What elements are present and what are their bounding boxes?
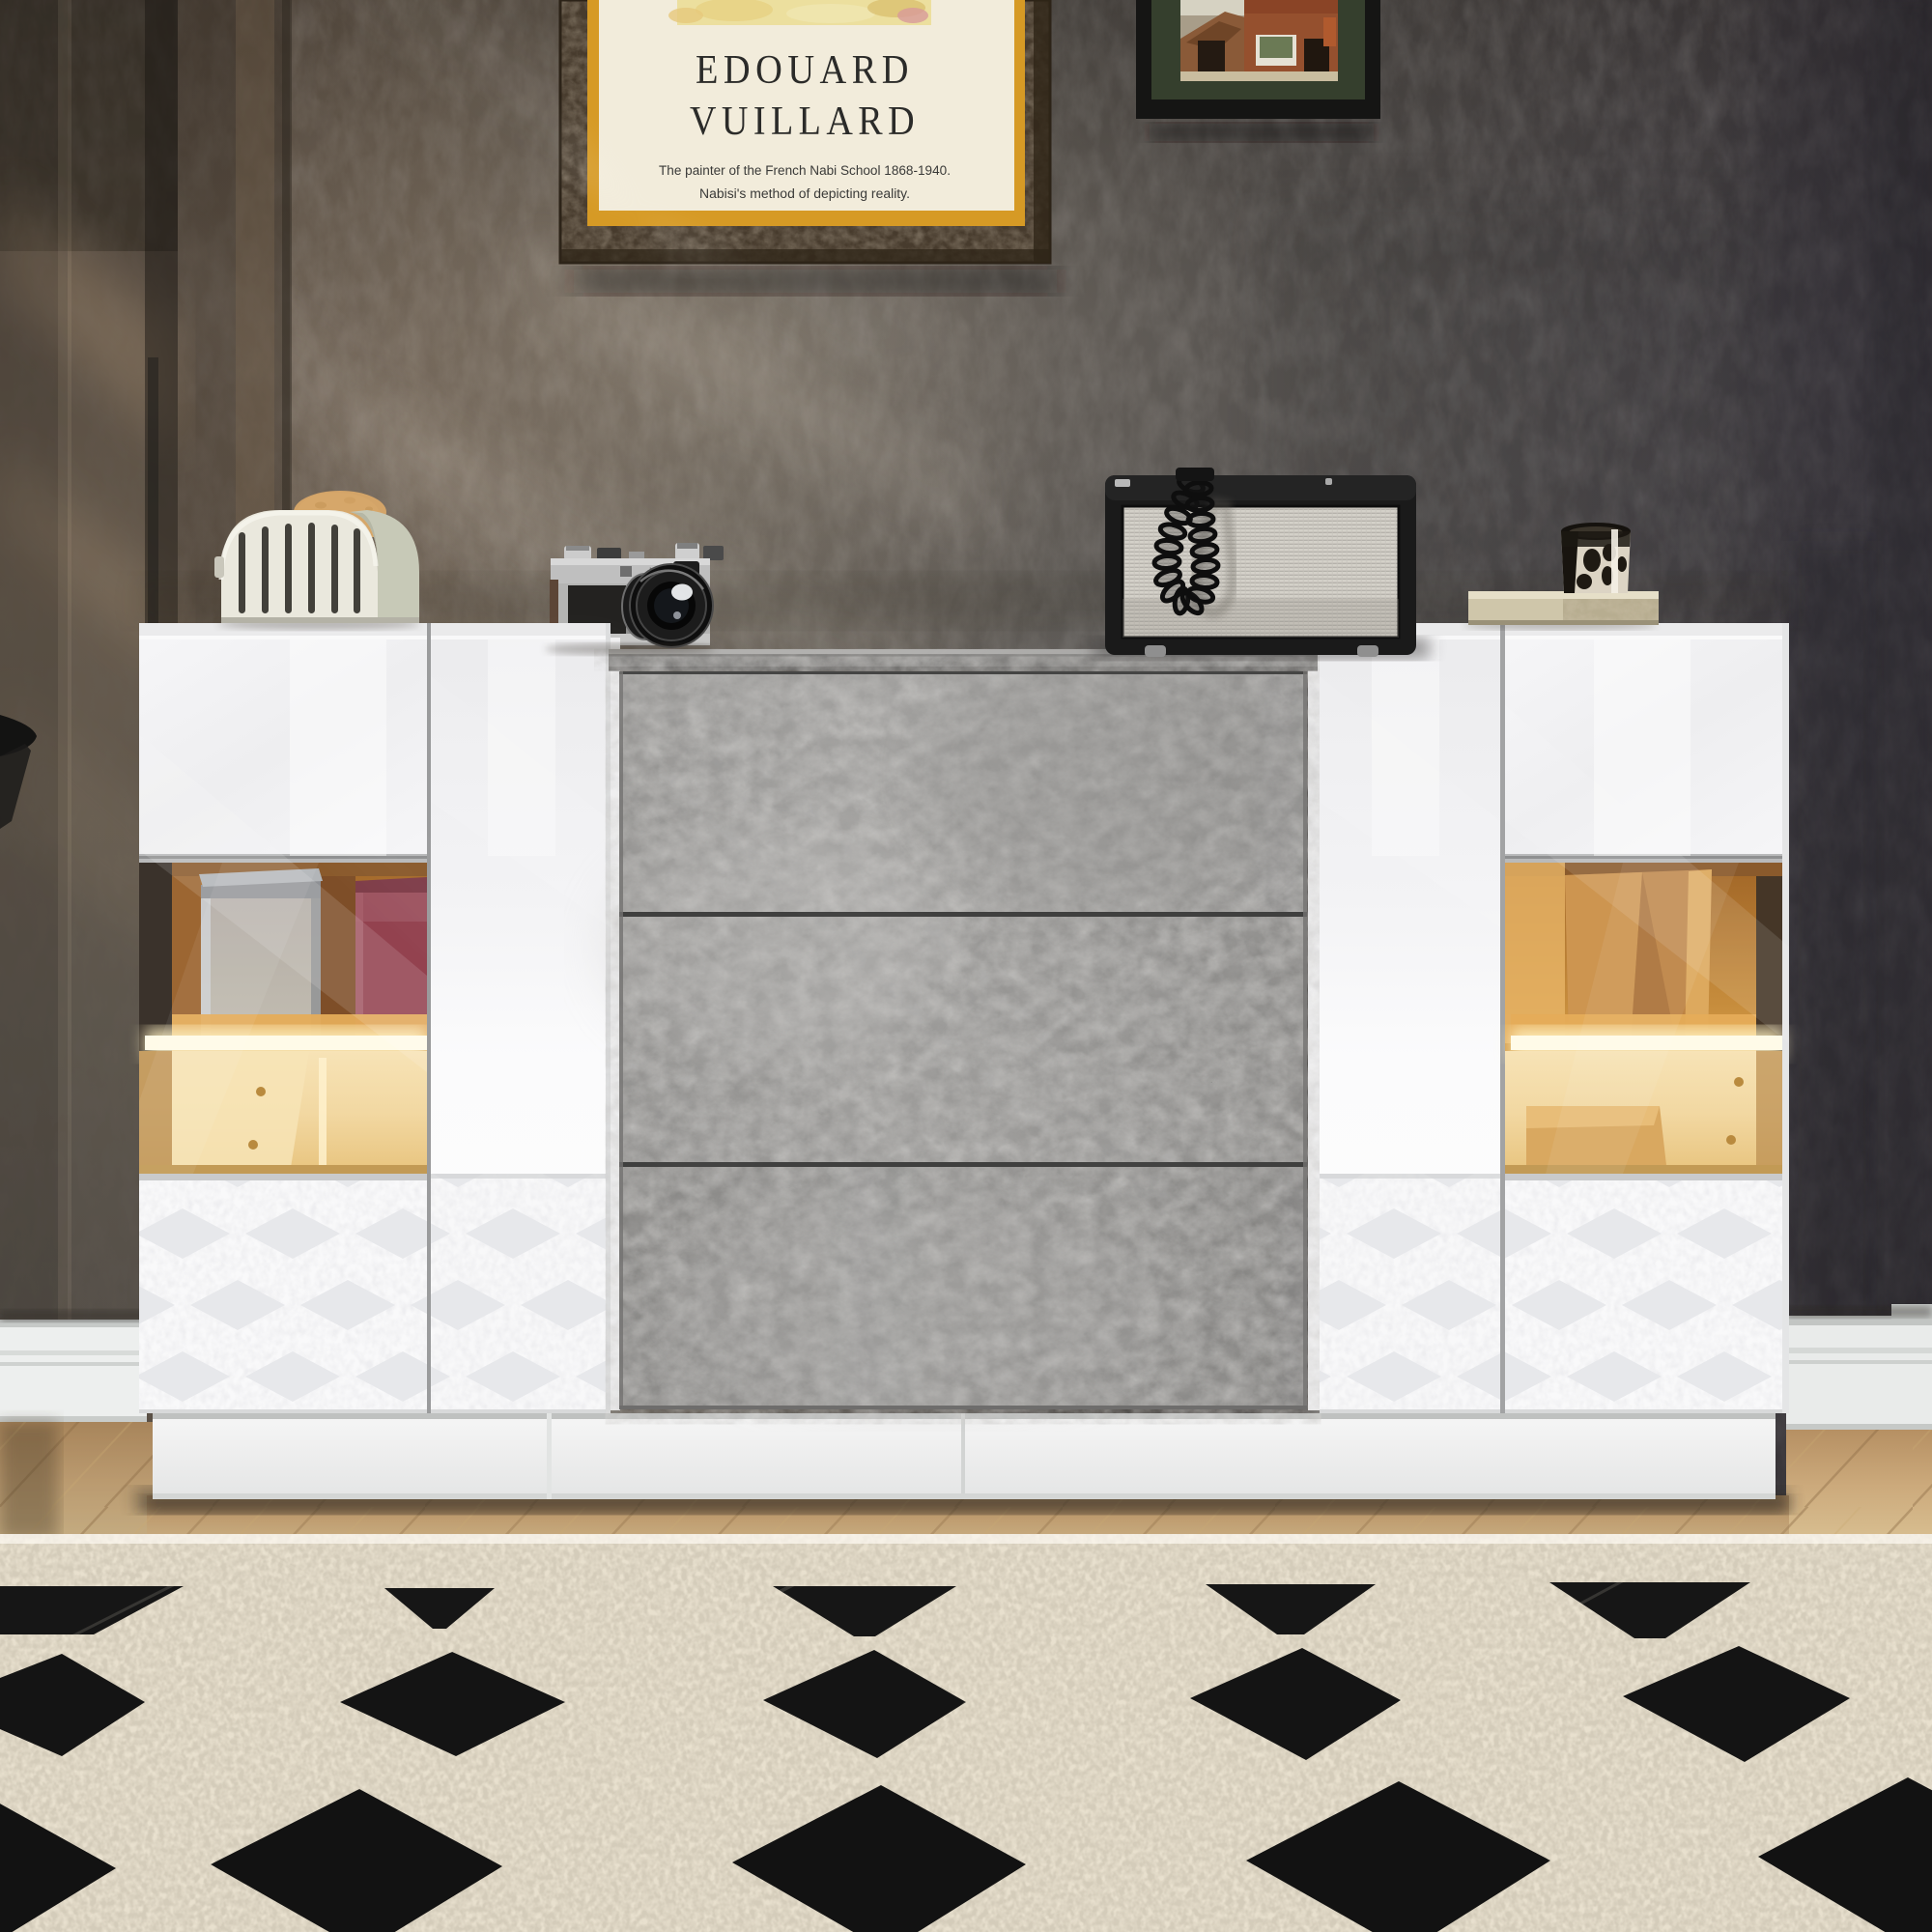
svg-text:Nabisi's method of depicting r: Nabisi's method of depicting reality.: [699, 186, 910, 201]
svg-text:EDOUARD: EDOUARD: [696, 48, 914, 93]
svg-text:The painter of the French Nabi: The painter of the French Nabi School 18…: [659, 163, 951, 178]
svg-text:VUILLARD: VUILLARD: [690, 99, 920, 144]
